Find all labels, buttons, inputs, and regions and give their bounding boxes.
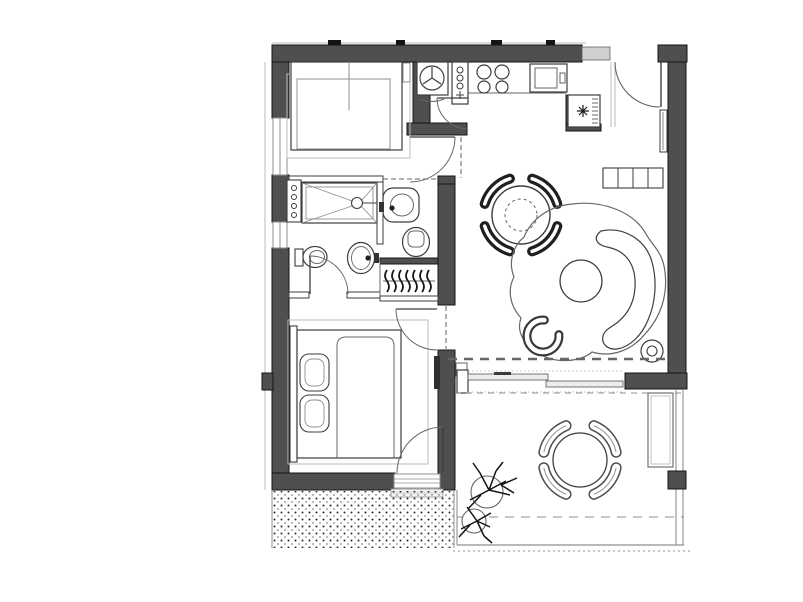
floor-plan-svg [0, 0, 803, 602]
bed-2 [290, 326, 401, 462]
gravel-ground [272, 491, 454, 548]
toilet-1 [295, 247, 327, 268]
bedroom2-door-north [396, 309, 437, 350]
washing-machine [417, 62, 448, 102]
pillow-2 [300, 395, 329, 432]
sink-2 [379, 188, 419, 222]
window-1 [273, 118, 287, 175]
fridge [568, 95, 600, 127]
sliding-door [457, 370, 623, 393]
sideboard-shelf [603, 168, 663, 188]
cooktop [477, 65, 509, 93]
terrace-railing [676, 389, 683, 545]
armchair [527, 320, 559, 352]
toilet-2 [403, 228, 430, 257]
shower [302, 183, 377, 223]
bedroom2-door-south [397, 427, 443, 473]
bath-shelf-column [287, 180, 301, 222]
window-2 [273, 222, 287, 248]
tv [434, 356, 440, 389]
sofa [596, 230, 655, 349]
entry-door [615, 62, 661, 107]
pillow-1 [300, 354, 329, 391]
planter-bench [648, 393, 673, 467]
plant-1 [468, 462, 517, 509]
radiator [660, 110, 667, 152]
bed-1 [291, 62, 402, 150]
plant-2 [459, 507, 492, 543]
railing-post [668, 471, 686, 489]
nightstand [403, 63, 410, 82]
outdoor-table [553, 433, 607, 487]
bedroom1-door [410, 137, 455, 182]
kitchen-sink [530, 64, 567, 92]
floor-plan [0, 0, 803, 602]
coffee-table [560, 260, 602, 302]
wardrobe-hangers [383, 270, 435, 292]
sink-1 [348, 243, 380, 274]
